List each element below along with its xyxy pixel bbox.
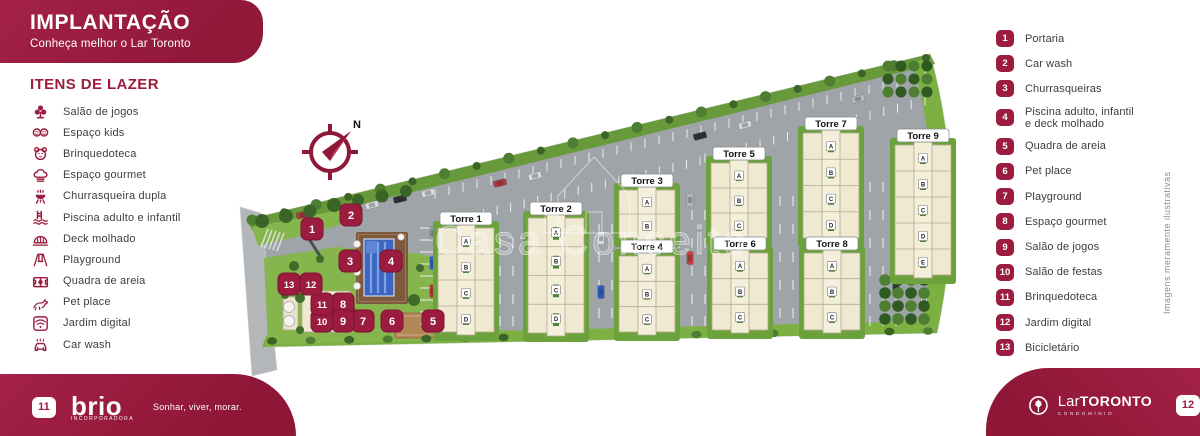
legend-item: 9Salão de jogos — [996, 239, 1171, 256]
legend-number-badge: 6 — [996, 163, 1014, 180]
leisure-item: Pet place — [30, 292, 255, 313]
watermark-text: Casa Conceito — [435, 219, 749, 263]
section-letter: B — [829, 171, 834, 177]
leisure-item-label: Salão de jogos — [63, 106, 139, 118]
section-letter: A — [921, 156, 926, 162]
leisure-items-panel: ITENS DE LAZER Salão de jogosEspaço kids… — [30, 76, 255, 355]
map-marker-number: 10 — [317, 317, 328, 328]
map-marker-number: 3 — [347, 256, 353, 268]
map-marker: 9 — [332, 310, 354, 332]
map-marker: 5 — [422, 310, 444, 332]
footer-left-badge: 11 — [32, 397, 56, 418]
legend-number-badge: 1 — [996, 30, 1014, 47]
map-marker: 4 — [380, 250, 402, 272]
footer-left-blob: 11 brio incorporadora Sonhar, viver, mor… — [0, 374, 296, 436]
legend-number-badge: 10 — [996, 264, 1014, 281]
leisure-item: Salão de jogos — [30, 101, 255, 122]
map-marker-number: 13 — [284, 280, 295, 291]
leisure-item-label: Car wash — [63, 339, 111, 351]
brio-logo: brio incorporadora — [71, 393, 134, 422]
tower: ABCTorre 8 — [799, 237, 865, 339]
leisure-heading: ITENS DE LAZER — [30, 76, 255, 93]
brio-sub-label: incorporadora — [71, 417, 134, 422]
tower-label: Torre 3 — [631, 176, 663, 187]
leisure-item-label: Piscina adulto e infantil — [63, 212, 181, 224]
lar-toronto-emblem-icon — [1028, 392, 1049, 419]
leisure-item: Deck molhado — [30, 228, 255, 249]
section-letter: C — [829, 197, 834, 203]
legend-number-badge: 12 — [996, 314, 1014, 331]
legend-item-label: Pet place — [1025, 165, 1072, 177]
pool-icon — [30, 208, 50, 228]
legend-item: 12Jardim digital — [996, 314, 1171, 331]
leisure-item-label: Espaço gourmet — [63, 169, 146, 181]
section-letter: D — [464, 317, 469, 323]
section-letter: C — [645, 318, 650, 324]
leisure-item: Brinquedoteca — [30, 143, 255, 164]
legend-item: 8Espaço gourmet — [996, 213, 1171, 230]
car — [598, 286, 604, 299]
legend-item: 2Car wash — [996, 55, 1171, 72]
legend-item-label: Salão de jogos — [1025, 241, 1099, 253]
toronto-wordmark: TORONTO — [1080, 393, 1152, 409]
section-letter: D — [829, 223, 834, 229]
implantation-page: ABCDTorre 1ABCDTorre 2ABTorre 3ABCTorre … — [0, 0, 1200, 436]
map-marker-number: 9 — [340, 316, 346, 328]
tower-label: Torre 9 — [907, 131, 939, 142]
section-letter: C — [738, 316, 743, 322]
compass-icon: N — [302, 119, 361, 180]
sand-court-icon — [30, 271, 50, 291]
legend-item: 5Quadra de areia — [996, 138, 1171, 155]
legend-item: 7Playground — [996, 188, 1171, 205]
legend-number-badge: 9 — [996, 239, 1014, 256]
leisure-item: Espaço gourmet — [30, 165, 255, 186]
tower-label: Torre 2 — [540, 204, 572, 215]
legend-number-badge: 13 — [996, 339, 1014, 356]
section-letter: B — [464, 265, 469, 271]
leisure-item: Playground — [30, 249, 255, 270]
map-marker: 12 — [300, 273, 322, 295]
legend-item: 3Churrasqueiras — [996, 80, 1171, 97]
legend-item-label: Jardim digital — [1025, 317, 1091, 329]
legend-item-label: Playground — [1025, 191, 1082, 203]
brand-tagline: Sonhar, viver, morar. — [153, 402, 242, 412]
wet-deck-icon — [30, 229, 50, 249]
section-letter: D — [921, 234, 926, 240]
legend-number-badge: 2 — [996, 55, 1014, 72]
section-letter: C — [830, 316, 835, 322]
section-letter: A — [829, 145, 834, 151]
legend-item: 13Bicicletário — [996, 339, 1171, 356]
leisure-list: Salão de jogosEspaço kidsBrinquedotecaEs… — [30, 101, 255, 355]
footer-right-badge: 12 — [1176, 395, 1200, 416]
game-room-icon — [30, 102, 50, 122]
leisure-item-label: Quadra de areia — [63, 275, 146, 287]
leisure-item: Quadra de areia — [30, 271, 255, 292]
section-letter: C — [464, 291, 469, 297]
section-letter: C — [554, 288, 559, 294]
map-marker: 11 — [311, 293, 333, 315]
lar-wordmark: Lar — [1058, 394, 1080, 410]
lar-toronto-logo: LarTORONTO CONDOMÍNIO — [1058, 394, 1152, 417]
disclaimer-text: Imagens meramente ilustrativas — [1162, 128, 1172, 358]
tower: ABCDTorre 7 — [798, 117, 864, 247]
section-letter: B — [921, 182, 926, 188]
tower-label: Torre 8 — [816, 239, 848, 250]
leisure-item-label: Espaço kids — [63, 127, 125, 139]
section-letter: C — [921, 208, 926, 214]
car-wash-icon — [30, 335, 50, 355]
map-legend: 1Portaria2Car wash3Churrasqueiras4Piscin… — [996, 30, 1171, 364]
map-marker: 1 — [301, 218, 323, 240]
bbq-icon — [30, 186, 50, 206]
section-letter: E — [921, 260, 925, 266]
map-marker: 13 — [278, 273, 300, 295]
section-letter: D — [554, 317, 559, 323]
map-marker-number: 4 — [388, 256, 395, 268]
footer-right-blob: LarTORONTO CONDOMÍNIO 12 — [986, 368, 1200, 436]
section-letter: A — [645, 267, 650, 273]
legend-item: 11Brinquedoteca — [996, 289, 1171, 306]
playground-icon — [30, 250, 50, 270]
leisure-item: Car wash — [30, 334, 255, 355]
legend-item: 4Piscina adulto, infantil e deck molhado — [996, 106, 1171, 130]
gourmet-icon — [30, 165, 50, 185]
legend-item-label: Brinquedoteca — [1025, 291, 1097, 303]
section-letter: A — [645, 200, 650, 206]
legend-item-label: Salão de festas — [1025, 266, 1102, 278]
map-marker: 6 — [381, 310, 403, 332]
map-marker-number: 7 — [360, 316, 366, 328]
leisure-item: Espaço kids — [30, 122, 255, 143]
section-letter: B — [645, 292, 650, 298]
leisure-item: Churrasqueira dupla — [30, 186, 255, 207]
map-marker-number: 11 — [317, 300, 328, 311]
legend-item-label: Car wash — [1025, 58, 1072, 70]
legend-number-badge: 7 — [996, 188, 1014, 205]
toy-library-icon — [30, 144, 50, 164]
tower: ABCDETorre 9 — [890, 129, 956, 284]
legend-item-label: Espaço gourmet — [1025, 216, 1107, 228]
legend-number-badge: 8 — [996, 213, 1014, 230]
map-marker-number: 6 — [389, 316, 395, 328]
legend-item-label: Quadra de areia — [1025, 140, 1106, 152]
leisure-item-label: Pet place — [63, 296, 111, 308]
lar-toronto-sub-label: CONDOMÍNIO — [1058, 412, 1152, 417]
legend-number-badge: 4 — [996, 109, 1014, 126]
map-marker-number: 12 — [306, 280, 317, 291]
map-marker-number: 2 — [348, 210, 354, 222]
leisure-item-label: Deck molhado — [63, 233, 136, 245]
page-subtitle: Conheça melhor o Lar Toronto — [30, 38, 263, 50]
leisure-item-label: Jardim digital — [63, 317, 131, 329]
tower-label: Torre 5 — [723, 149, 755, 160]
map-marker-number: 5 — [430, 316, 436, 328]
map-marker: 2 — [340, 204, 362, 226]
section-letter: A — [738, 264, 743, 270]
leisure-item-label: Playground — [63, 254, 121, 266]
header-blob: IMPLANTAÇÃO Conheça melhor o Lar Toronto — [0, 0, 263, 63]
legend-number-badge: 3 — [996, 80, 1014, 97]
leisure-item-label: Brinquedoteca — [63, 148, 137, 160]
tower-label: Torre 7 — [815, 119, 847, 130]
section-letter: B — [830, 290, 835, 296]
page-title: IMPLANTAÇÃO — [30, 11, 263, 35]
legend-number-badge: 11 — [996, 289, 1014, 306]
car — [687, 194, 693, 207]
legend-number-badge: 5 — [996, 138, 1014, 155]
legend-item: 1Portaria — [996, 30, 1171, 47]
leisure-item: Piscina adulto e infantil — [30, 207, 255, 228]
map-marker-number: 8 — [340, 299, 346, 311]
legend-item: 10Salão de festas — [996, 264, 1171, 281]
map-marker: 3 — [339, 250, 361, 272]
section-letter: A — [737, 174, 742, 180]
legend-list: 1Portaria2Car wash3Churrasqueiras4Piscin… — [996, 30, 1171, 356]
section-letter: B — [737, 199, 742, 205]
pet-place-icon — [30, 292, 50, 312]
legend-item: 6Pet place — [996, 163, 1171, 180]
section-letter: A — [830, 264, 835, 270]
leisure-item-label: Churrasqueira dupla — [63, 190, 166, 202]
leisure-item: Jardim digital — [30, 313, 255, 334]
legend-item-label: Bicicletário — [1025, 342, 1079, 354]
legend-item-label: Churrasqueiras — [1025, 83, 1102, 95]
compass-north-label: N — [353, 119, 361, 131]
digital-garden-icon — [30, 313, 50, 333]
map-marker-number: 1 — [309, 224, 315, 236]
legend-item-label: Piscina adulto, infantil e deck molhado — [1025, 106, 1134, 130]
kids-space-icon — [30, 123, 50, 143]
map-marker: 7 — [352, 310, 374, 332]
legend-item-label: Portaria — [1025, 33, 1064, 45]
section-letter: B — [738, 290, 743, 296]
